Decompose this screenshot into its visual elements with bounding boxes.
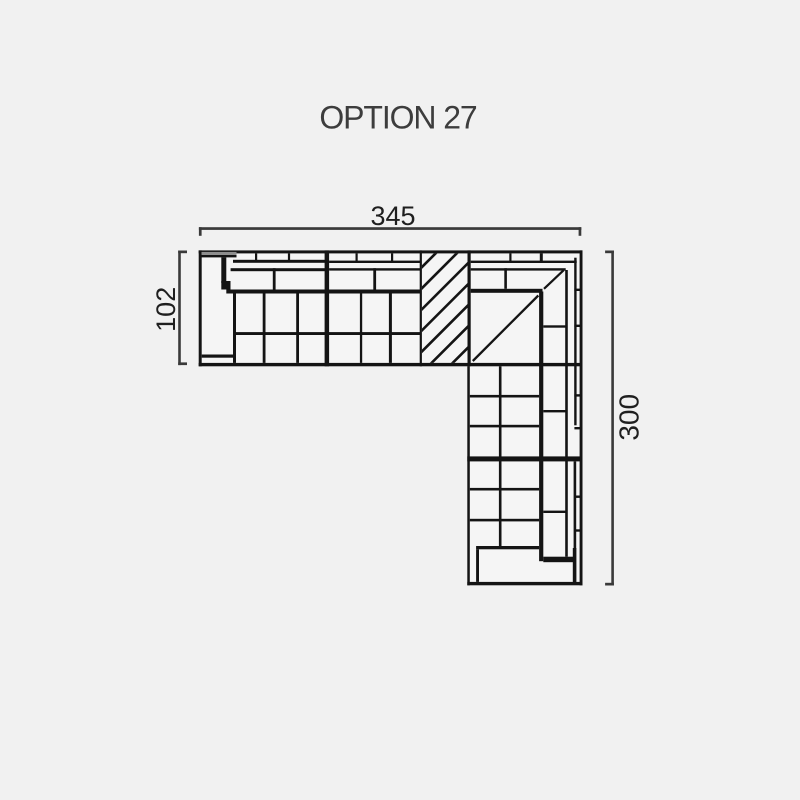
svg-text:OPTION 27: OPTION 27 bbox=[319, 100, 477, 136]
svg-text:300: 300 bbox=[613, 394, 644, 441]
svg-text:345: 345 bbox=[370, 201, 415, 231]
svg-text:102: 102 bbox=[151, 287, 181, 332]
